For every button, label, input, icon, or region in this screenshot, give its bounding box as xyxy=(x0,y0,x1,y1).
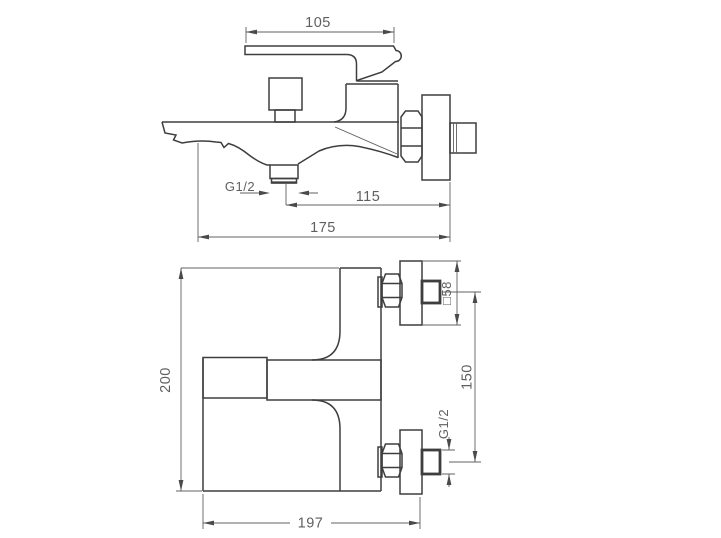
hex-nut-facets xyxy=(382,454,402,468)
hex-nut-facets xyxy=(382,284,402,298)
plan-lever-end xyxy=(203,358,267,399)
dimension-lever-length: 105 xyxy=(246,15,394,43)
arrowhead xyxy=(409,521,420,526)
arrowhead xyxy=(439,203,450,208)
dim-label-g12-side: G1/2 xyxy=(225,179,255,194)
spout-underside-outline xyxy=(162,122,270,165)
wall-flange xyxy=(400,261,422,325)
arrowhead xyxy=(298,191,309,196)
plan-view: 200 197 □58 150 G1/2 xyxy=(158,261,481,532)
dimension-overall-width: 200 xyxy=(158,268,339,491)
spout-crease-line xyxy=(335,127,397,154)
hex-nut-facets xyxy=(401,128,422,146)
arrowhead xyxy=(383,30,394,35)
arrowhead xyxy=(259,191,270,196)
lever-handle-outline xyxy=(245,46,401,81)
dim-label-g12-plan: G1/2 xyxy=(436,409,451,439)
dim-label-sq58: □58 xyxy=(439,281,454,305)
hex-nut xyxy=(401,111,422,162)
dim-label-150: 150 xyxy=(460,364,476,390)
side-wall-connection xyxy=(401,95,476,180)
dim-label-200: 200 xyxy=(158,367,174,393)
mixer-body-outline xyxy=(334,84,398,158)
diverter-knob xyxy=(269,78,302,110)
arrowhead xyxy=(455,314,460,325)
arrowhead xyxy=(455,261,460,272)
arrowhead xyxy=(246,30,257,35)
hex-nut xyxy=(382,444,402,477)
wall-flange xyxy=(422,95,450,180)
plan-inlet-top xyxy=(378,261,440,325)
arrowhead xyxy=(203,521,214,526)
inlet-stub xyxy=(422,281,440,303)
inlet-stub xyxy=(422,450,440,474)
plan-spout-band xyxy=(267,360,381,400)
arrowhead xyxy=(473,451,478,462)
side-view: 105 G1/2 115 175 xyxy=(162,15,476,242)
dim-label-175: 175 xyxy=(310,220,336,236)
arrowhead xyxy=(179,480,184,491)
arrowhead xyxy=(286,203,297,208)
plan-inlet-bottom xyxy=(378,430,440,494)
diverter-knob-neck xyxy=(275,110,295,122)
arrowhead xyxy=(439,235,450,240)
faucet-technical-drawing: 105 G1/2 115 175 xyxy=(0,0,721,538)
arrowhead xyxy=(447,439,452,450)
plan-body-outline xyxy=(203,268,381,491)
technical-drawing-sheet: 105 G1/2 115 175 xyxy=(0,0,721,538)
arrowhead xyxy=(198,235,209,240)
dimension-overall-length: 197 xyxy=(203,494,420,532)
arrowhead xyxy=(473,292,478,303)
arrowhead xyxy=(179,268,184,279)
hex-nut xyxy=(382,274,402,307)
outlet-stub xyxy=(270,165,298,179)
dim-label-105: 105 xyxy=(305,15,331,31)
wall-stub-thread-lines xyxy=(454,123,457,153)
dim-label-197: 197 xyxy=(298,516,324,532)
dim-label-115: 115 xyxy=(356,189,381,205)
arrowhead xyxy=(447,474,452,485)
wall-flange xyxy=(400,430,422,494)
